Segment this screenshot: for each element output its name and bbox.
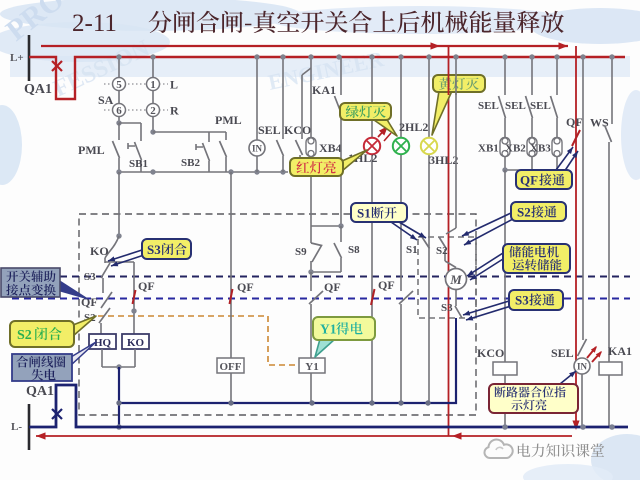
svg-text:S1: S1: [357, 206, 371, 221]
svg-text:XB2: XB2: [505, 143, 526, 155]
svg-text:S2: S2: [517, 205, 531, 220]
svg-text:SEL: SEL: [258, 123, 281, 137]
svg-text:OFF: OFF: [220, 361, 242, 373]
svg-text:L-: L-: [11, 421, 22, 433]
svg-text:5: 5: [116, 79, 122, 91]
svg-text:Y1: Y1: [320, 322, 337, 337]
svg-text:2-11: 2-11: [72, 10, 117, 37]
svg-text:IN: IN: [252, 144, 263, 154]
svg-text:SA: SA: [98, 93, 114, 107]
svg-text:KCO: KCO: [477, 346, 504, 360]
svg-text:QF: QF: [324, 280, 341, 294]
svg-text:SEL: SEL: [505, 100, 526, 112]
svg-text:QF: QF: [237, 280, 254, 294]
svg-text:XB1: XB1: [478, 143, 499, 155]
svg-text:SEL: SEL: [478, 100, 499, 112]
svg-text:XB3: XB3: [530, 143, 551, 155]
svg-text:2: 2: [150, 105, 156, 117]
svg-text:QA1: QA1: [24, 82, 52, 97]
svg-text:KO: KO: [127, 337, 145, 349]
svg-text:HQ: HQ: [94, 337, 112, 349]
svg-text:PML: PML: [78, 143, 105, 157]
svg-text:XB4: XB4: [319, 141, 342, 155]
svg-text:Y1: Y1: [305, 361, 318, 373]
svg-text:S3: S3: [441, 302, 453, 314]
svg-text:KA1: KA1: [312, 83, 336, 97]
svg-text:KCO: KCO: [284, 123, 311, 137]
svg-text:6: 6: [116, 105, 122, 117]
svg-text:M: M: [449, 272, 462, 287]
svg-text:2HL2: 2HL2: [399, 120, 428, 134]
svg-text:S3: S3: [147, 242, 161, 257]
svg-text:S3: S3: [515, 293, 529, 308]
svg-text:SB1: SB1: [129, 158, 148, 170]
svg-text:SB2: SB2: [181, 157, 200, 169]
svg-text:KO: KO: [90, 244, 109, 258]
svg-text:1: 1: [150, 79, 156, 91]
svg-text:S1: S1: [406, 244, 418, 256]
svg-text:QF: QF: [138, 279, 155, 293]
svg-text:S9: S9: [295, 246, 307, 258]
svg-text:PML: PML: [215, 113, 242, 127]
svg-text:QF: QF: [378, 278, 395, 292]
svg-text:S2: S2: [17, 328, 32, 343]
svg-text:S8: S8: [348, 244, 360, 256]
svg-text:QF: QF: [520, 173, 538, 188]
svg-text:L+: L+: [10, 52, 24, 64]
svg-text:L: L: [170, 78, 178, 92]
svg-text:KA1: KA1: [608, 344, 632, 358]
svg-text:SEL: SEL: [530, 100, 551, 112]
svg-text:R: R: [170, 104, 179, 118]
svg-text:SEL: SEL: [551, 346, 574, 360]
svg-text:QF: QF: [566, 115, 583, 129]
svg-text:3HL2: 3HL2: [429, 153, 458, 167]
svg-text:S2: S2: [436, 245, 448, 257]
svg-text:IN: IN: [577, 362, 588, 372]
svg-text:QA1: QA1: [26, 384, 54, 399]
svg-text:S3: S3: [84, 271, 96, 283]
